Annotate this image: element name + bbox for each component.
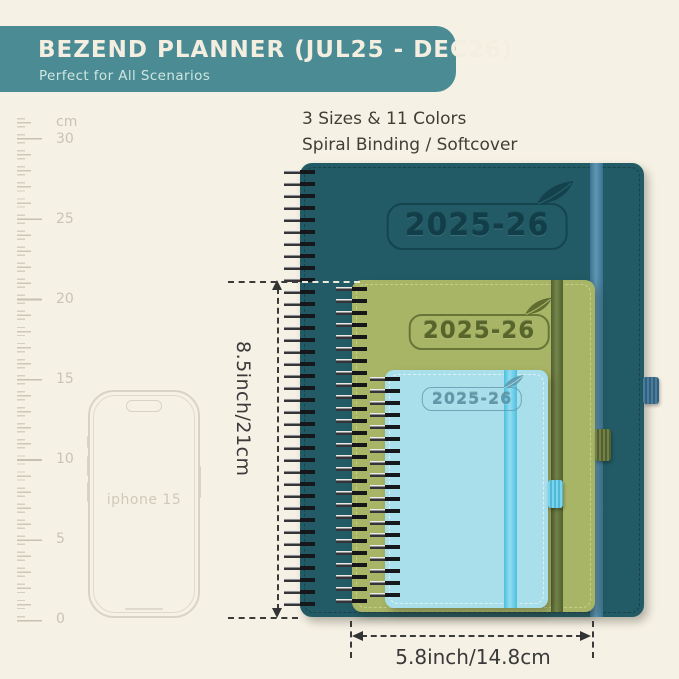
height-dimension-label: 8.5inch/21cm	[232, 341, 254, 477]
width-dimension-label: 5.8inch/14.8cm	[352, 645, 594, 669]
height-ref-line-top	[228, 281, 298, 283]
feather-icon	[502, 374, 525, 389]
ruler-label-15: 15	[56, 371, 92, 387]
ruler-ticks-long	[17, 138, 42, 622]
planner-medium-spiral-outer	[336, 287, 352, 607]
product-info: 3 Sizes & 11 Colors Spiral Binding / Sof…	[302, 106, 517, 158]
planner-large-pen-loop	[643, 377, 659, 404]
planner-small-spiral-outer	[370, 377, 385, 603]
header-banner: BEZEND PLANNER (JUL25 - DEC26) Perfect f…	[0, 26, 456, 92]
planner-large-spiral-inner	[300, 170, 315, 610]
ruler-label-20: 20	[56, 291, 92, 307]
ruler-label-0: 0	[56, 611, 92, 627]
planner-small-spiral-inner	[385, 377, 400, 603]
product-size-diagram: BEZEND PLANNER (JUL25 - DEC26) Perfect f…	[0, 0, 679, 679]
planner-medium-year-label: 2025-26	[423, 318, 536, 344]
info-line-binding: Spiral Binding / Softcover	[302, 132, 517, 158]
iphone-dynamic-island	[126, 400, 162, 412]
planner-medium-spiral-inner	[352, 287, 367, 607]
iphone-mute-switch	[87, 436, 90, 448]
iphone-outline: iphone 15	[88, 390, 200, 618]
feather-icon	[533, 179, 575, 206]
planner-large-year-label: 2025-26	[405, 208, 550, 243]
height-ref-line-bottom	[228, 617, 298, 619]
planner-medium-year-emboss: 2025-26	[409, 314, 550, 350]
iphone-volume-up-button	[87, 456, 90, 476]
width-arrow-right-icon	[580, 631, 591, 641]
planner-small-year-label: 2025-26	[432, 389, 512, 408]
planner-medium-pen-loop	[595, 429, 611, 461]
iphone-home-bar	[125, 608, 163, 610]
width-dimension-line	[361, 635, 582, 637]
planner-large-year-emboss: 2025-26	[387, 203, 568, 250]
product-subtitle: Perfect for All Scenarios	[39, 68, 210, 84]
planner-large-spiral-outer	[284, 170, 300, 610]
info-line-sizes: 3 Sizes & 11 Colors	[302, 106, 517, 132]
planner-small-year-emboss: 2025-26	[422, 387, 522, 411]
height-ref-line-top-light	[302, 281, 360, 283]
ruler-label-25: 25	[56, 211, 92, 227]
ruler-unit-label: cm	[56, 114, 92, 130]
feather-icon	[522, 296, 553, 316]
ruler-label-30: 30	[56, 131, 92, 147]
iphone-label: iphone 15	[90, 492, 198, 508]
planner-medium-elastic-band	[551, 280, 563, 612]
iphone-power-button	[198, 466, 201, 498]
width-arrow-left-icon	[352, 631, 363, 641]
product-title: BEZEND PLANNER (JUL25 - DEC26)	[38, 37, 513, 63]
planner-small-pen-loop	[548, 480, 563, 508]
ruler-label-5: 5	[56, 531, 92, 547]
height-dimension-line	[277, 288, 279, 610]
